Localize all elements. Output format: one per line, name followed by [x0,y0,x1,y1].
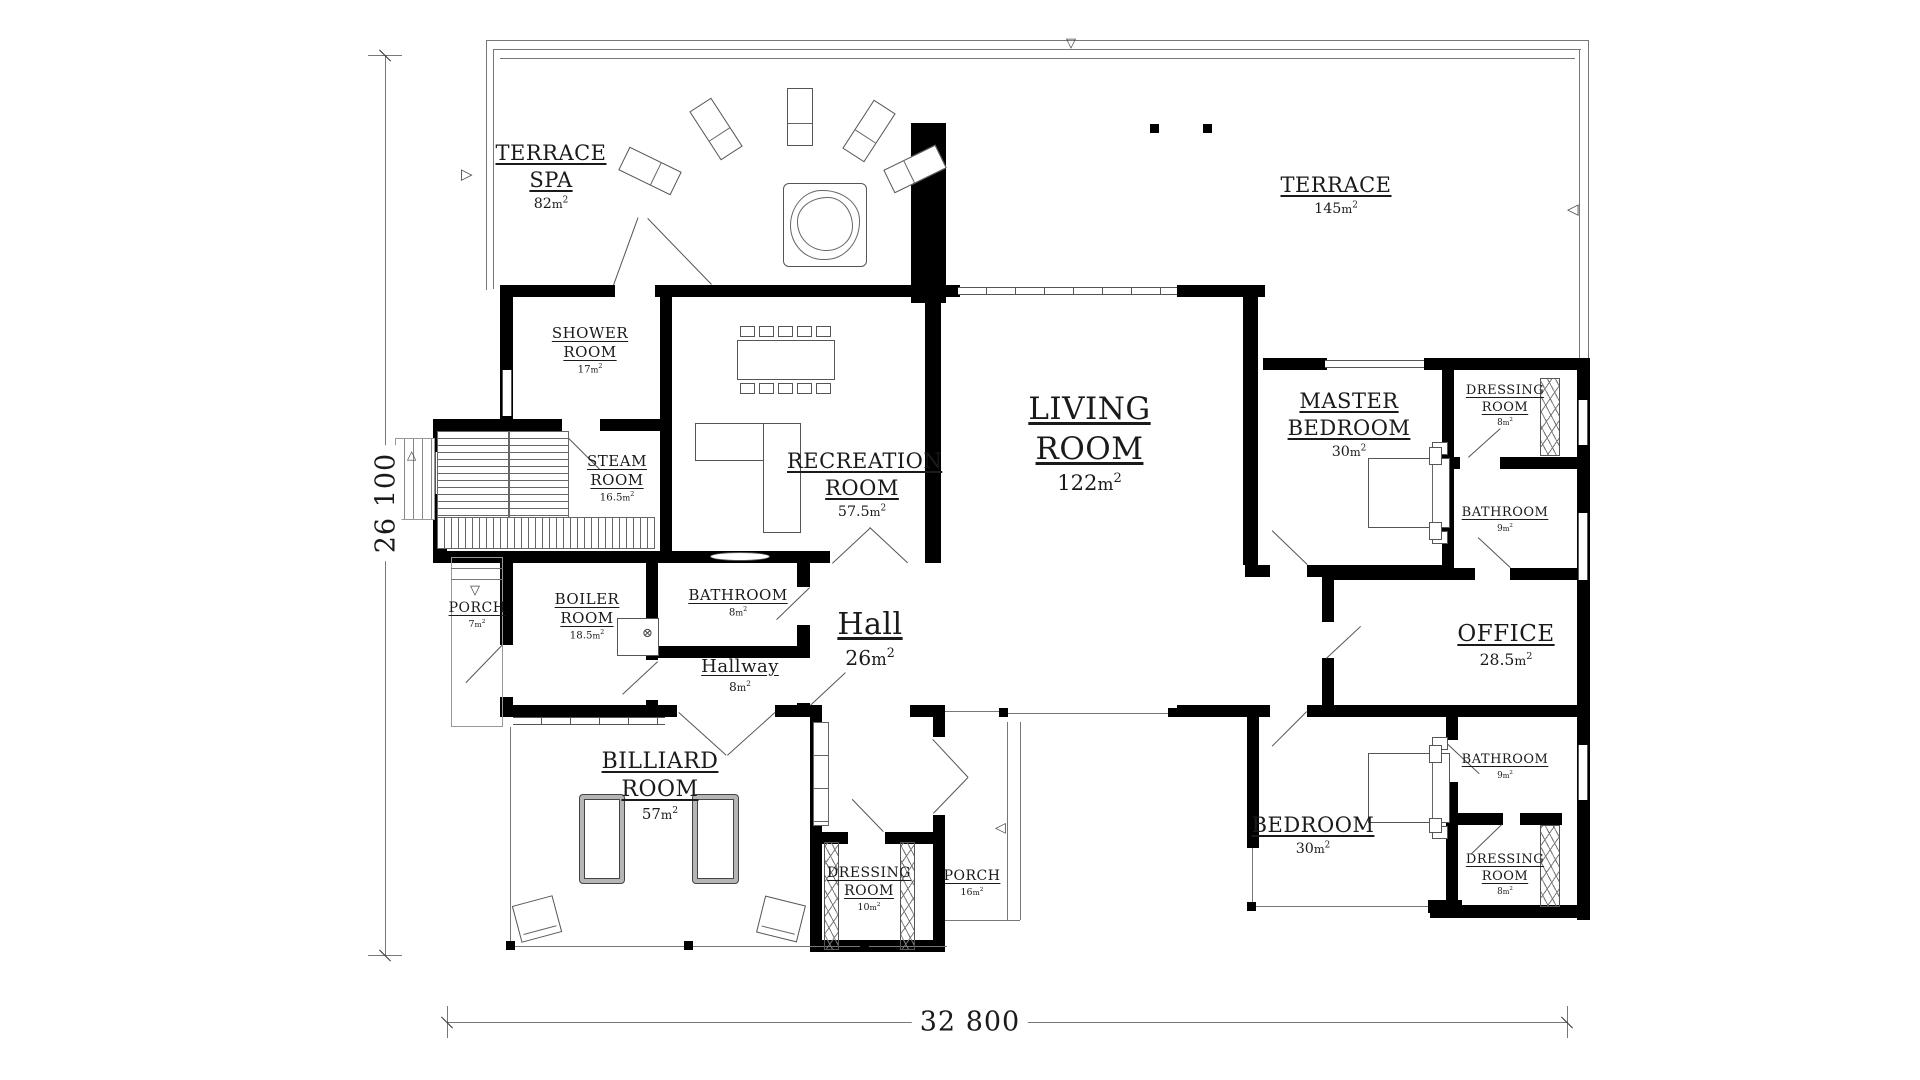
lounge-chair [618,147,682,196]
wall [1520,813,1562,825]
glazed-wall [945,711,1007,712]
window [1578,400,1588,445]
room-area: 16m2 [932,887,1012,899]
dining-chair [778,383,793,394]
room-area: 8m2 [678,606,798,619]
room-area: 10m2 [824,902,914,914]
hall-cabinet [813,722,829,826]
wall [797,625,810,658]
lounge-chair [842,100,895,163]
post [860,941,869,950]
room-area: 17m2 [550,363,630,376]
room-area: 18.5m2 [547,629,627,642]
post [1247,902,1256,911]
door-swing [1272,711,1307,746]
room-label-hall: Hall 26m2 [810,606,930,672]
door-swing [869,527,908,563]
room-label-terrace-spa: TERRACE SPA 82m2 [491,140,611,213]
wall [1450,457,1460,469]
dining-table [737,340,835,380]
post [506,941,515,950]
wall [1458,813,1503,825]
porch-step [451,579,503,580]
bed-master [1368,458,1450,528]
wall [1500,457,1579,469]
door-swing [1326,626,1361,659]
steps-arrow-icon: △ [407,448,416,462]
post [999,708,1008,717]
window [1578,513,1588,580]
door-swing [932,739,968,778]
terrace-border [486,40,487,290]
wall [1243,287,1258,565]
door-swing [852,799,884,832]
room-area: 122m2 [1002,470,1177,497]
door-swing [613,217,639,285]
room-label-living-room: LIVING ROOM 122m2 [1002,390,1177,497]
post [684,941,693,950]
terrace-border [486,40,1588,41]
bathroom-fixture [1429,745,1442,763]
armchair [756,895,806,942]
glazed-wall [1252,906,1430,907]
wall [1430,905,1590,918]
room-area: 8m2 [690,679,790,696]
room-area: 28.5m2 [1436,650,1576,670]
door-swing [1470,824,1502,855]
section-marker-down-icon: ▽ [1066,36,1076,51]
room-area: 145m2 [1266,200,1406,218]
window [513,717,665,725]
room-label-bathroom-hall: BATHROOM 8m2 [678,586,798,620]
room-label-billiard-room: BILLIARD ROOM 57m2 [595,748,725,824]
wall [1245,565,1270,577]
wall [1446,705,1577,717]
entry-arrow-left-icon: ◁ [995,820,1006,836]
room-label-steam-room: STEAM ROOM 16.5m2 [582,452,652,505]
wall [1322,658,1334,712]
room-label-terrace: TERRACE 145m2 [1266,172,1406,218]
porch-entry-arrow-icon: ▽ [470,583,480,598]
room-area: 8m2 [1460,417,1550,429]
dining-chair [759,326,774,337]
sauna-bench [437,431,509,525]
section-marker-right-icon: ▷ [461,165,473,183]
room-area: 30m2 [1274,443,1424,461]
hot-tub [783,183,867,267]
room-label-boiler-room: BOILER ROOM 18.5m2 [547,590,627,643]
sauna-bench [509,431,569,519]
dimension-width-label: 32 800 [912,1007,1028,1038]
wall [797,563,810,587]
room-label-office: OFFICE 28.5m2 [1436,620,1576,670]
room-area: 82m2 [491,195,611,213]
glazed-wall [510,727,511,946]
wall [925,303,941,563]
room-label-dressing-room-master: DRESSING ROOM 8m2 [1460,383,1550,430]
room-area: 16.5m2 [582,491,652,504]
terrace-border [500,58,1575,59]
room-label-master-bedroom: MASTER BEDROOM 30m2 [1274,388,1424,461]
sauna-bench [437,517,655,549]
wall [1177,705,1270,717]
console-table [710,552,770,561]
dining-chair [759,383,774,394]
glazed-wall [1020,722,1021,920]
room-area: 9m2 [1445,523,1565,535]
room-area: 57.5m2 [787,503,937,521]
wall [660,419,672,551]
room-label-hallway: Hallway 8m2 [690,655,790,696]
window [958,287,1177,295]
terrace-post [1203,124,1212,133]
wall [660,285,672,431]
room-label-recreation-room: RECREATION ROOM 57.5m2 [787,448,937,521]
dining-chair [740,383,755,394]
hot-tub-basin [797,197,853,251]
room-label-shower-room: SHOWER ROOM 17m2 [550,324,630,377]
door-swing [727,712,775,756]
door-swing [1468,428,1501,458]
floor-plan-canvas: ▷ ◁ ▽ [0,0,1920,1080]
terrace-border [493,49,1581,50]
terrace-border [1579,49,1580,369]
section-marker-left-icon: ◁ [1567,200,1579,218]
glazed-wall [510,946,947,947]
room-label-dressing-room-entry: DRESSING ROOM 10m2 [824,865,914,914]
room-area: 7m2 [437,619,517,631]
wall [1322,577,1334,622]
post [1168,708,1177,717]
wall [933,712,945,737]
room-label-bathroom-bedroom: BATHROOM 9m2 [1445,752,1565,782]
window [502,370,512,416]
window [1578,745,1588,800]
wall [500,285,615,297]
terrace-post [1150,124,1159,133]
wall [775,705,822,717]
room-area: 30m2 [1243,840,1383,858]
wall [1510,568,1579,580]
glazed-wall [1003,713,1177,714]
wall [1263,358,1327,370]
boiler-valve-icon: ⊗ [642,626,653,641]
door-swing [810,672,846,705]
dining-chair [816,326,831,337]
room-area: 8m2 [1460,886,1550,898]
terrace-border [1588,40,1589,370]
dining-chair [740,326,755,337]
room-area: 57m2 [595,805,725,824]
dining-chair [816,383,831,394]
porch-step [451,568,503,569]
glazed-wall [945,920,1020,921]
door-swing [1478,537,1511,568]
room-label-bedroom: BEDROOM 30m2 [1243,812,1383,858]
room-label-porch-south: PORCH 16m2 [932,868,1012,899]
wall [655,285,911,297]
lounge-chair [787,88,813,146]
room-area: 9m2 [1445,770,1565,782]
door-swing [832,528,871,564]
bathroom-fixture [1429,522,1442,540]
dining-chair [778,326,793,337]
armchair [512,895,562,943]
bathroom-fixture [1429,447,1442,465]
dining-chair [797,383,812,394]
room-label-bathroom-master: BATHROOM 9m2 [1445,505,1565,535]
wall [1326,568,1475,580]
door-swing [622,661,658,694]
room-label-dressing-room-bedroom: DRESSING ROOM 8m2 [1460,852,1550,899]
room-area: 26m2 [810,645,930,671]
dimension-height-label: 26 100 [371,445,402,561]
door-swing [1272,530,1308,565]
wall [885,832,945,844]
wall [500,705,677,717]
wall [433,419,562,431]
room-label-porch-west: PORCH 7m2 [437,600,517,631]
bathroom-fixture [1429,818,1442,833]
window [1325,360,1424,368]
door-swing [933,777,968,814]
door-swing [647,218,712,285]
lounge-chair [689,98,742,161]
dining-chair [797,326,812,337]
